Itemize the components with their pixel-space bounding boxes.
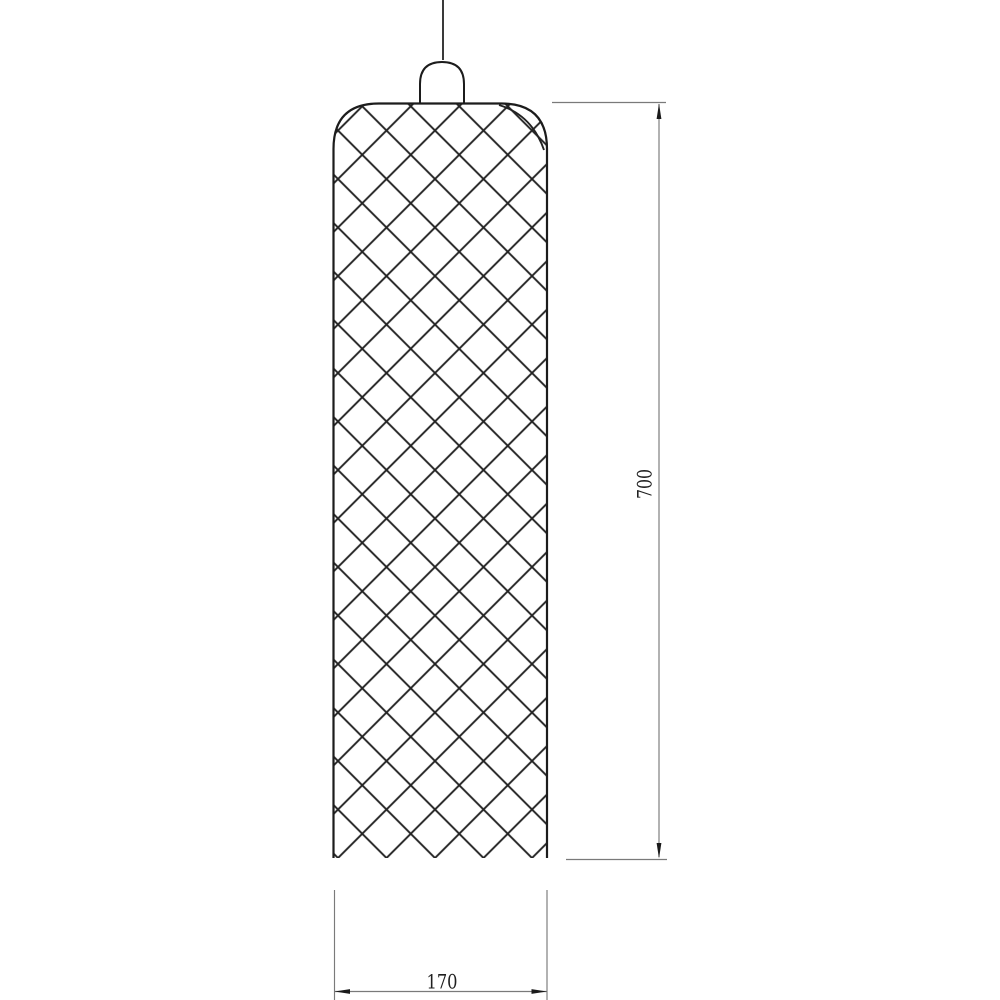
height-dimension-label: 700	[633, 469, 657, 499]
technical-drawing-canvas: 700 170	[0, 0, 1000, 1000]
socket-cap	[420, 62, 464, 104]
lattice-hatch-pattern	[333, 103, 548, 858]
height-dimension: 700	[552, 103, 667, 860]
dimension-arrow-right-icon	[532, 989, 548, 994]
lattice-hatch-group	[333, 103, 548, 858]
dimension-arrow-left-icon	[335, 989, 351, 994]
width-dimension-label: 170	[427, 970, 458, 994]
dimension-arrow-up-icon	[657, 104, 662, 120]
technical-drawing-page: 700 170	[0, 0, 1000, 1000]
dimension-arrow-down-icon	[657, 843, 662, 859]
width-dimension: 170	[335, 890, 548, 1000]
